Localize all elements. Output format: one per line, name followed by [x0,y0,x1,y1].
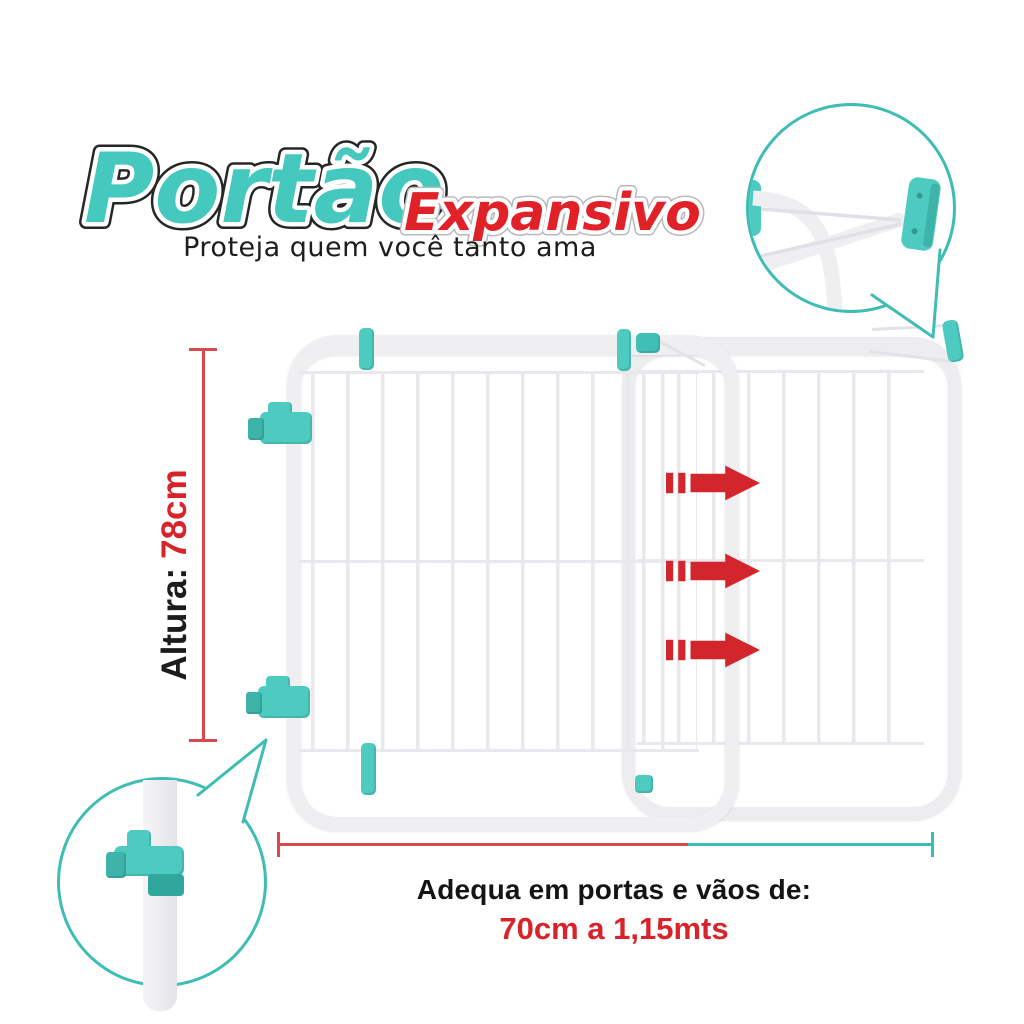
width-dimension-line-red [278,843,688,846]
lock-clamp-lower [246,692,262,714]
fit-range-text: Adequa em portas e vãos de: 70cm a 1,15m… [294,874,934,947]
clamp-detail-jaw [106,852,126,878]
clamp-detail-band [148,874,184,896]
gate-front-wire-top [299,371,699,374]
width-dimension-cap [277,832,280,857]
gate-front-wire-bottom [299,749,699,752]
height-dimension-cap [189,348,217,351]
fit-range-line1: Adequa em portas e vãos de: [294,874,934,906]
logo-primary-text: Portão [84,133,444,245]
tagline: Proteja quem você tanto ama [70,232,710,263]
fit-range-line2: 70cm a 1,15mts [294,911,934,947]
rail-clip [636,333,660,353]
expand-arrow-icon [666,465,760,501]
rail-clip [359,328,374,370]
callout-tail [855,240,965,345]
height-label: Altura: 78cm [153,445,197,705]
lock-clamp-lower [258,686,310,718]
bottom-rail-clip [635,775,653,793]
rail-clip [617,329,631,371]
product-infographic: Portão Portão Portão Expansivo Expansivo… [0,0,1024,1024]
lock-clamp-upper [260,412,312,444]
height-dimension-line [202,350,205,742]
bottom-rail-clip [361,743,376,795]
width-dimension-line-teal [688,843,933,846]
height-value: 78cm [155,469,195,559]
svg-text:Portão: Portão [84,133,444,245]
expand-arrow-icon [666,632,760,668]
logo-primary-outline: Portão [84,133,444,245]
gate-front-wire-mid [299,560,699,563]
callout-tail [188,733,273,828]
height-label-text: Altura: [155,568,195,681]
width-dimension-cap [931,832,934,857]
expand-arrow-icon [666,553,760,589]
lock-clamp-upper [248,418,264,440]
